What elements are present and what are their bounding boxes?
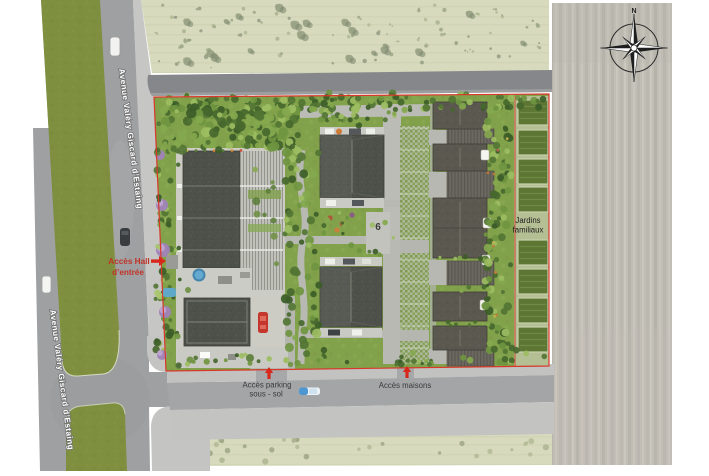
svg-text:Accès Hall: Accès Hall xyxy=(108,257,149,266)
svg-text:sous - sol: sous - sol xyxy=(249,390,283,399)
svg-text:Accès parking: Accès parking xyxy=(243,381,292,390)
svg-text:N: N xyxy=(631,8,636,15)
svg-text:Jardins: Jardins xyxy=(515,216,540,225)
svg-text:Accès maisons: Accès maisons xyxy=(379,381,432,390)
svg-text:6: 6 xyxy=(375,222,381,233)
svg-text:familiaux: familiaux xyxy=(513,226,544,235)
svg-text:d’entrée: d’entrée xyxy=(112,268,144,277)
